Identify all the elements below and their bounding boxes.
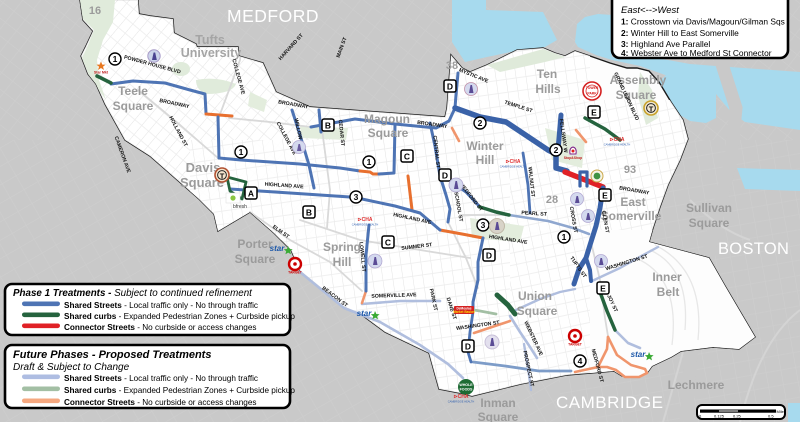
svg-text:1: Crosstown via Davis/Magoun/: 1: Crosstown via Davis/Magoun/Gilman Sqs [621,17,785,27]
svg-text:3: 3 [354,192,359,202]
svg-text:BOSTON: BOSTON [718,240,789,258]
svg-text:Belt: Belt [657,285,680,299]
svg-text:D: D [465,342,471,352]
svg-text:Square: Square [689,216,730,230]
svg-text:Square: Square [478,410,519,422]
svg-text:E: E [591,108,597,118]
svg-text:CAMBRIDGE HEALTH: CAMBRIDGE HEALTH [500,165,527,169]
svg-text:B: B [306,208,312,218]
svg-text:FOODS: FOODS [460,388,473,392]
svg-text:East: East [620,195,645,209]
svg-text:Hill: Hill [476,153,495,167]
svg-text:Square: Square [517,304,558,318]
svg-text:Ten: Ten [537,67,557,81]
svg-text:Inner: Inner [652,270,682,284]
svg-text:⊳CHA: ⊳CHA [505,159,520,165]
svg-text:⊳CHA: ⊳CHA [609,137,624,143]
svg-text:Phase 1 Treatments - Subject t: Phase 1 Treatments - Subject to continue… [13,288,253,299]
svg-text:Magoun: Magoun [364,112,410,126]
svg-text:star: star [357,309,373,318]
svg-text:Lechmere: Lechmere [668,378,725,392]
svg-text:Sullivan: Sullivan [686,201,732,215]
svg-text:28: 28 [546,194,558,206]
svg-text:A: A [248,189,254,199]
svg-text:0.125: 0.125 [714,414,725,419]
svg-text:D: D [442,171,448,181]
svg-text:Mile: Mile [777,409,785,414]
svg-text:0.5: 0.5 [768,414,774,419]
svg-text:Shared Streets - Local traffic: Shared Streets - Local traffic only - No… [64,374,258,383]
svg-text:1: 1 [239,147,244,157]
svg-text:CAMBRIDGE: CAMBRIDGE [556,393,663,412]
svg-text:2: 2 [554,145,559,155]
svg-text:0.25: 0.25 [733,414,742,419]
svg-text:1: 1 [367,157,372,167]
svg-text:⊳CHA: ⊳CHA [453,394,468,400]
svg-text:Shared curbs - Expanded Pedest: Shared curbs - Expanded Pedestrian Zones… [64,312,295,321]
svg-text:bfresh: bfresh [233,204,247,210]
svg-text:Market Basket: Market Basket [453,310,476,314]
svg-text:E: E [602,191,608,201]
svg-text:University: University [181,46,241,60]
svg-text:D: D [447,82,453,92]
svg-text:Stop&Shop: Stop&Shop [564,156,582,160]
svg-text:Draft & Subject to Change: Draft & Subject to Change [13,362,130,373]
svg-text:star: star [631,350,647,359]
svg-text:TARGET: TARGET [568,343,583,347]
svg-text:CAMBRIDGE HEALTH: CAMBRIDGE HEALTH [448,400,475,404]
svg-text:Square: Square [368,126,409,140]
svg-text:Inman: Inman [480,396,515,410]
svg-text:C: C [404,152,410,162]
svg-text:D: D [486,251,492,261]
svg-text:Future Phases - Proposed Treat: Future Phases - Proposed Treatments [13,349,211,361]
svg-text:Connector Streets - No curbsid: Connector Streets - No curbside or acces… [64,398,257,407]
svg-text:TOWER: TOWER [586,86,599,90]
svg-text:Winter: Winter [466,139,504,153]
svg-text:Star Mkt: Star Mkt [94,71,109,75]
svg-text:CAMBRIDGE HEALTH: CAMBRIDGE HEALTH [604,143,631,147]
svg-text:1: 1 [113,54,118,64]
svg-text:2: 2 [478,118,483,128]
svg-text:Square: Square [235,252,276,266]
svg-text:star: star [270,244,286,253]
svg-text:⊳CHA: ⊳CHA [357,217,372,223]
svg-text:C: C [385,238,391,248]
svg-text:MEDFORD: MEDFORD [227,6,319,26]
svg-text:Spring: Spring [323,240,361,254]
svg-text:WHOLE: WHOLE [459,383,473,387]
svg-text:E: E [600,284,606,294]
svg-text:Hill: Hill [333,255,352,269]
svg-text:1: 1 [562,232,567,242]
svg-text:93: 93 [624,164,636,176]
svg-text:Union: Union [518,289,552,303]
svg-text:16: 16 [89,5,101,17]
svg-text:B: B [325,121,331,131]
svg-text:PARK: PARK [587,91,597,95]
svg-text:Square: Square [113,99,154,113]
svg-text:4: 4 [578,356,583,366]
svg-text:Shared curbs - Expanded Pedest: Shared curbs - Expanded Pedestrian Zones… [64,386,295,395]
svg-text:East<-->West: East<-->West [621,5,679,16]
svg-text:3: 3 [481,220,486,230]
svg-text:Teele: Teele [118,84,148,98]
svg-text:Shared Streets - Local traffic: Shared Streets - Local traffic only - No… [64,301,258,310]
svg-text:TARGET: TARGET [288,271,303,275]
svg-text:CAMBRIDGE HEALTH: CAMBRIDGE HEALTH [352,223,379,227]
svg-text:Porter: Porter [237,237,273,251]
svg-text:4: Webster Ave to Medford St C: 4: Webster Ave to Medford St Connector [621,48,772,58]
svg-text:Hills: Hills [535,82,561,96]
svg-text:T: T [220,171,225,180]
svg-text:Somerville: Somerville [601,209,662,223]
svg-text:T: T [649,104,654,113]
svg-text:2: Winter Hill to East Somervi: 2: Winter Hill to East Somerville [621,28,739,38]
svg-text:Connector Streets - No curbsid: Connector Streets - No curbside or acces… [64,323,257,332]
svg-text:Tufts: Tufts [195,33,225,47]
svg-text:38: 38 [446,60,458,72]
